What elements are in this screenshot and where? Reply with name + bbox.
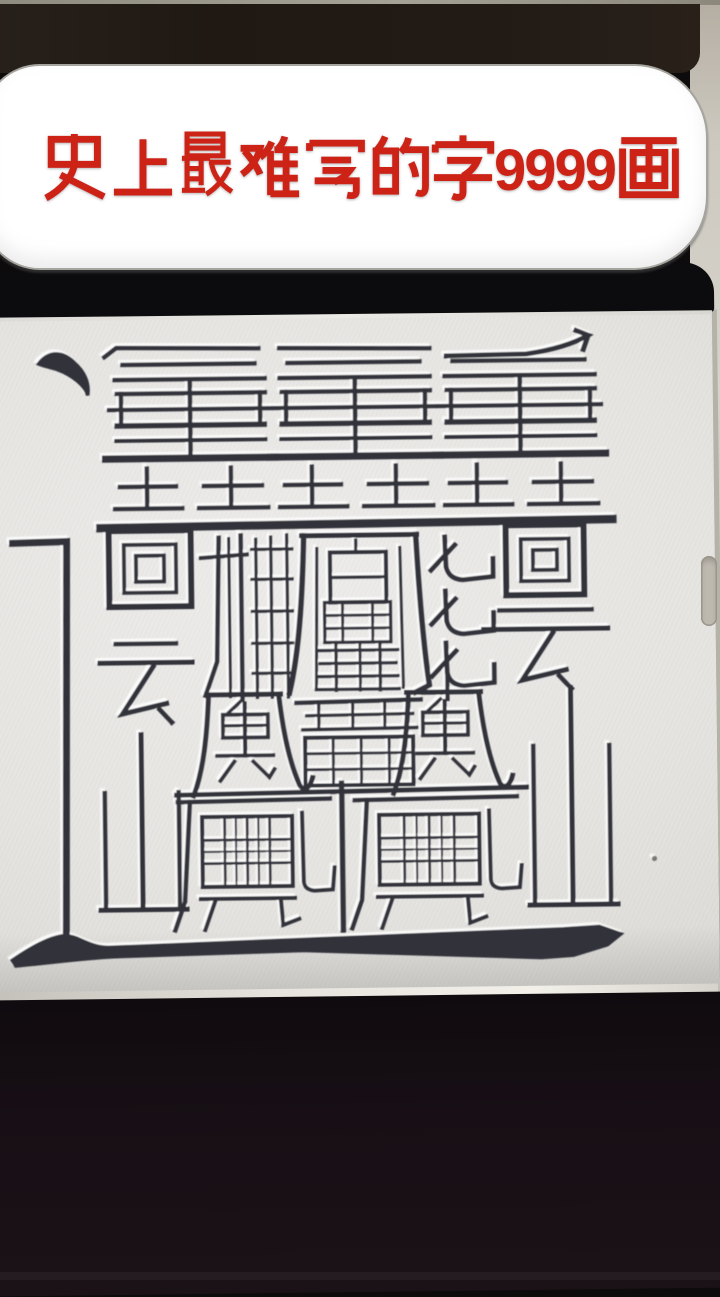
svg-text:9999: 9999 [494, 138, 616, 203]
